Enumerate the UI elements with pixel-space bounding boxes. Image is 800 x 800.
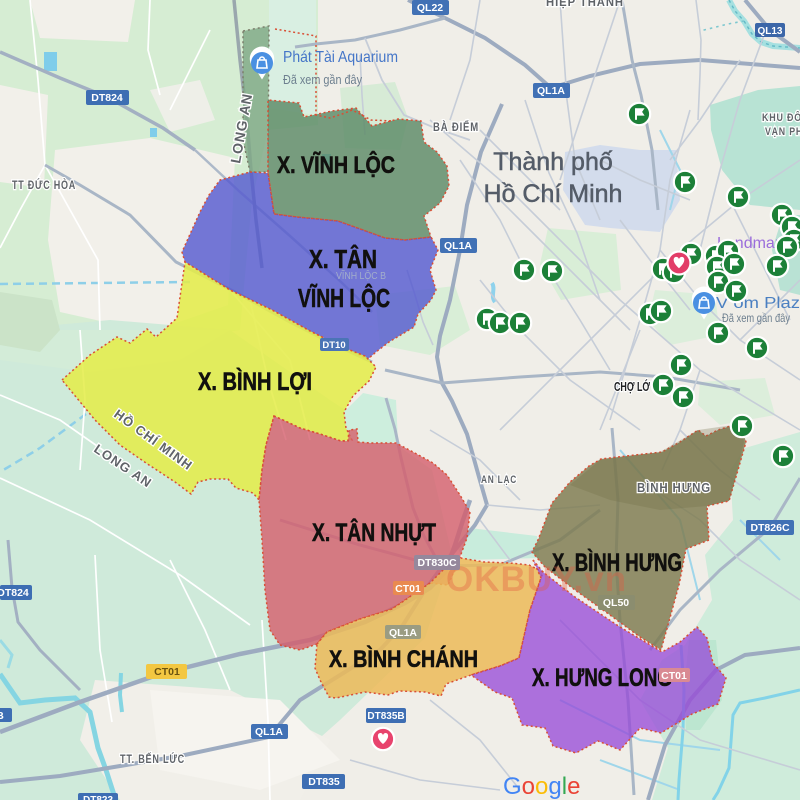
svg-text:Hồ Chí Minh: Hồ Chí Minh [484, 180, 623, 208]
svg-text:CHỢ LỚ: CHỢ LỚ [614, 379, 651, 394]
svg-text:DT10: DT10 [322, 340, 345, 351]
svg-text:X. TÂN NHỰT: X. TÂN NHỰT [312, 517, 436, 547]
svg-text:OKBUY.vn: OKBUY.vn [446, 560, 627, 599]
svg-text:X. VĨNH LỘC: X. VĨNH LỘC [277, 151, 395, 179]
svg-text:AN LẠC: AN LẠC [481, 474, 517, 486]
svg-text:BÌNH HƯNG: BÌNH HƯNG [637, 480, 711, 495]
svg-text:DT824: DT824 [0, 587, 29, 599]
svg-text:X. HƯNG LONG: X. HƯNG LONG [532, 664, 672, 692]
svg-text:DT826C: DT826C [750, 522, 790, 534]
svg-text:VĨNH LỘC: VĨNH LỘC [298, 283, 390, 313]
svg-text:DT824: DT824 [91, 92, 123, 104]
svg-text:HIỆP THÀNH: HIỆP THÀNH [546, 0, 624, 9]
svg-text:DT835B: DT835B [367, 711, 404, 722]
svg-text:B: B [0, 710, 4, 722]
svg-text:Thành phố: Thành phố [493, 148, 613, 176]
svg-text:QL1A: QL1A [444, 240, 472, 252]
svg-text:DT835: DT835 [308, 776, 340, 788]
svg-text:QL22: QL22 [417, 2, 443, 14]
svg-text:CT01: CT01 [661, 670, 687, 682]
svg-text:Đã xem gần đây: Đã xem gần đây [283, 73, 363, 87]
svg-text:X. BÌNH LỢI: X. BÌNH LỢI [198, 367, 312, 396]
svg-text:QL1A: QL1A [537, 85, 565, 97]
svg-text:VẠN PH: VẠN PH [765, 126, 800, 138]
svg-text:Google: Google [503, 773, 580, 800]
svg-text:TT ĐỨC HÒA: TT ĐỨC HÒA [12, 177, 76, 192]
svg-text:DT823: DT823 [83, 795, 113, 800]
svg-text:Đã xem gần đây: Đã xem gần đây [722, 311, 790, 325]
svg-text:QL1A: QL1A [389, 627, 417, 639]
svg-text:CT01: CT01 [154, 666, 180, 678]
svg-text:X. TÂN: X. TÂN [309, 244, 377, 274]
svg-text:CT01: CT01 [395, 583, 421, 595]
svg-text:QL1A: QL1A [255, 726, 283, 738]
svg-text:KHU ĐÔ: KHU ĐÔ [762, 111, 800, 124]
svg-text:BÀ ĐIỂM: BÀ ĐIỂM [433, 121, 479, 134]
svg-text:Phát Tài Aquarium: Phát Tài Aquarium [283, 49, 398, 66]
svg-text:TT. BẾN LỨC: TT. BẾN LỨC [120, 751, 185, 766]
svg-text:QL13: QL13 [757, 26, 782, 37]
svg-text:X. BÌNH CHÁNH: X. BÌNH CHÁNH [329, 645, 478, 673]
svg-text:DT830C: DT830C [417, 557, 457, 569]
svg-text:QL50: QL50 [603, 597, 629, 609]
